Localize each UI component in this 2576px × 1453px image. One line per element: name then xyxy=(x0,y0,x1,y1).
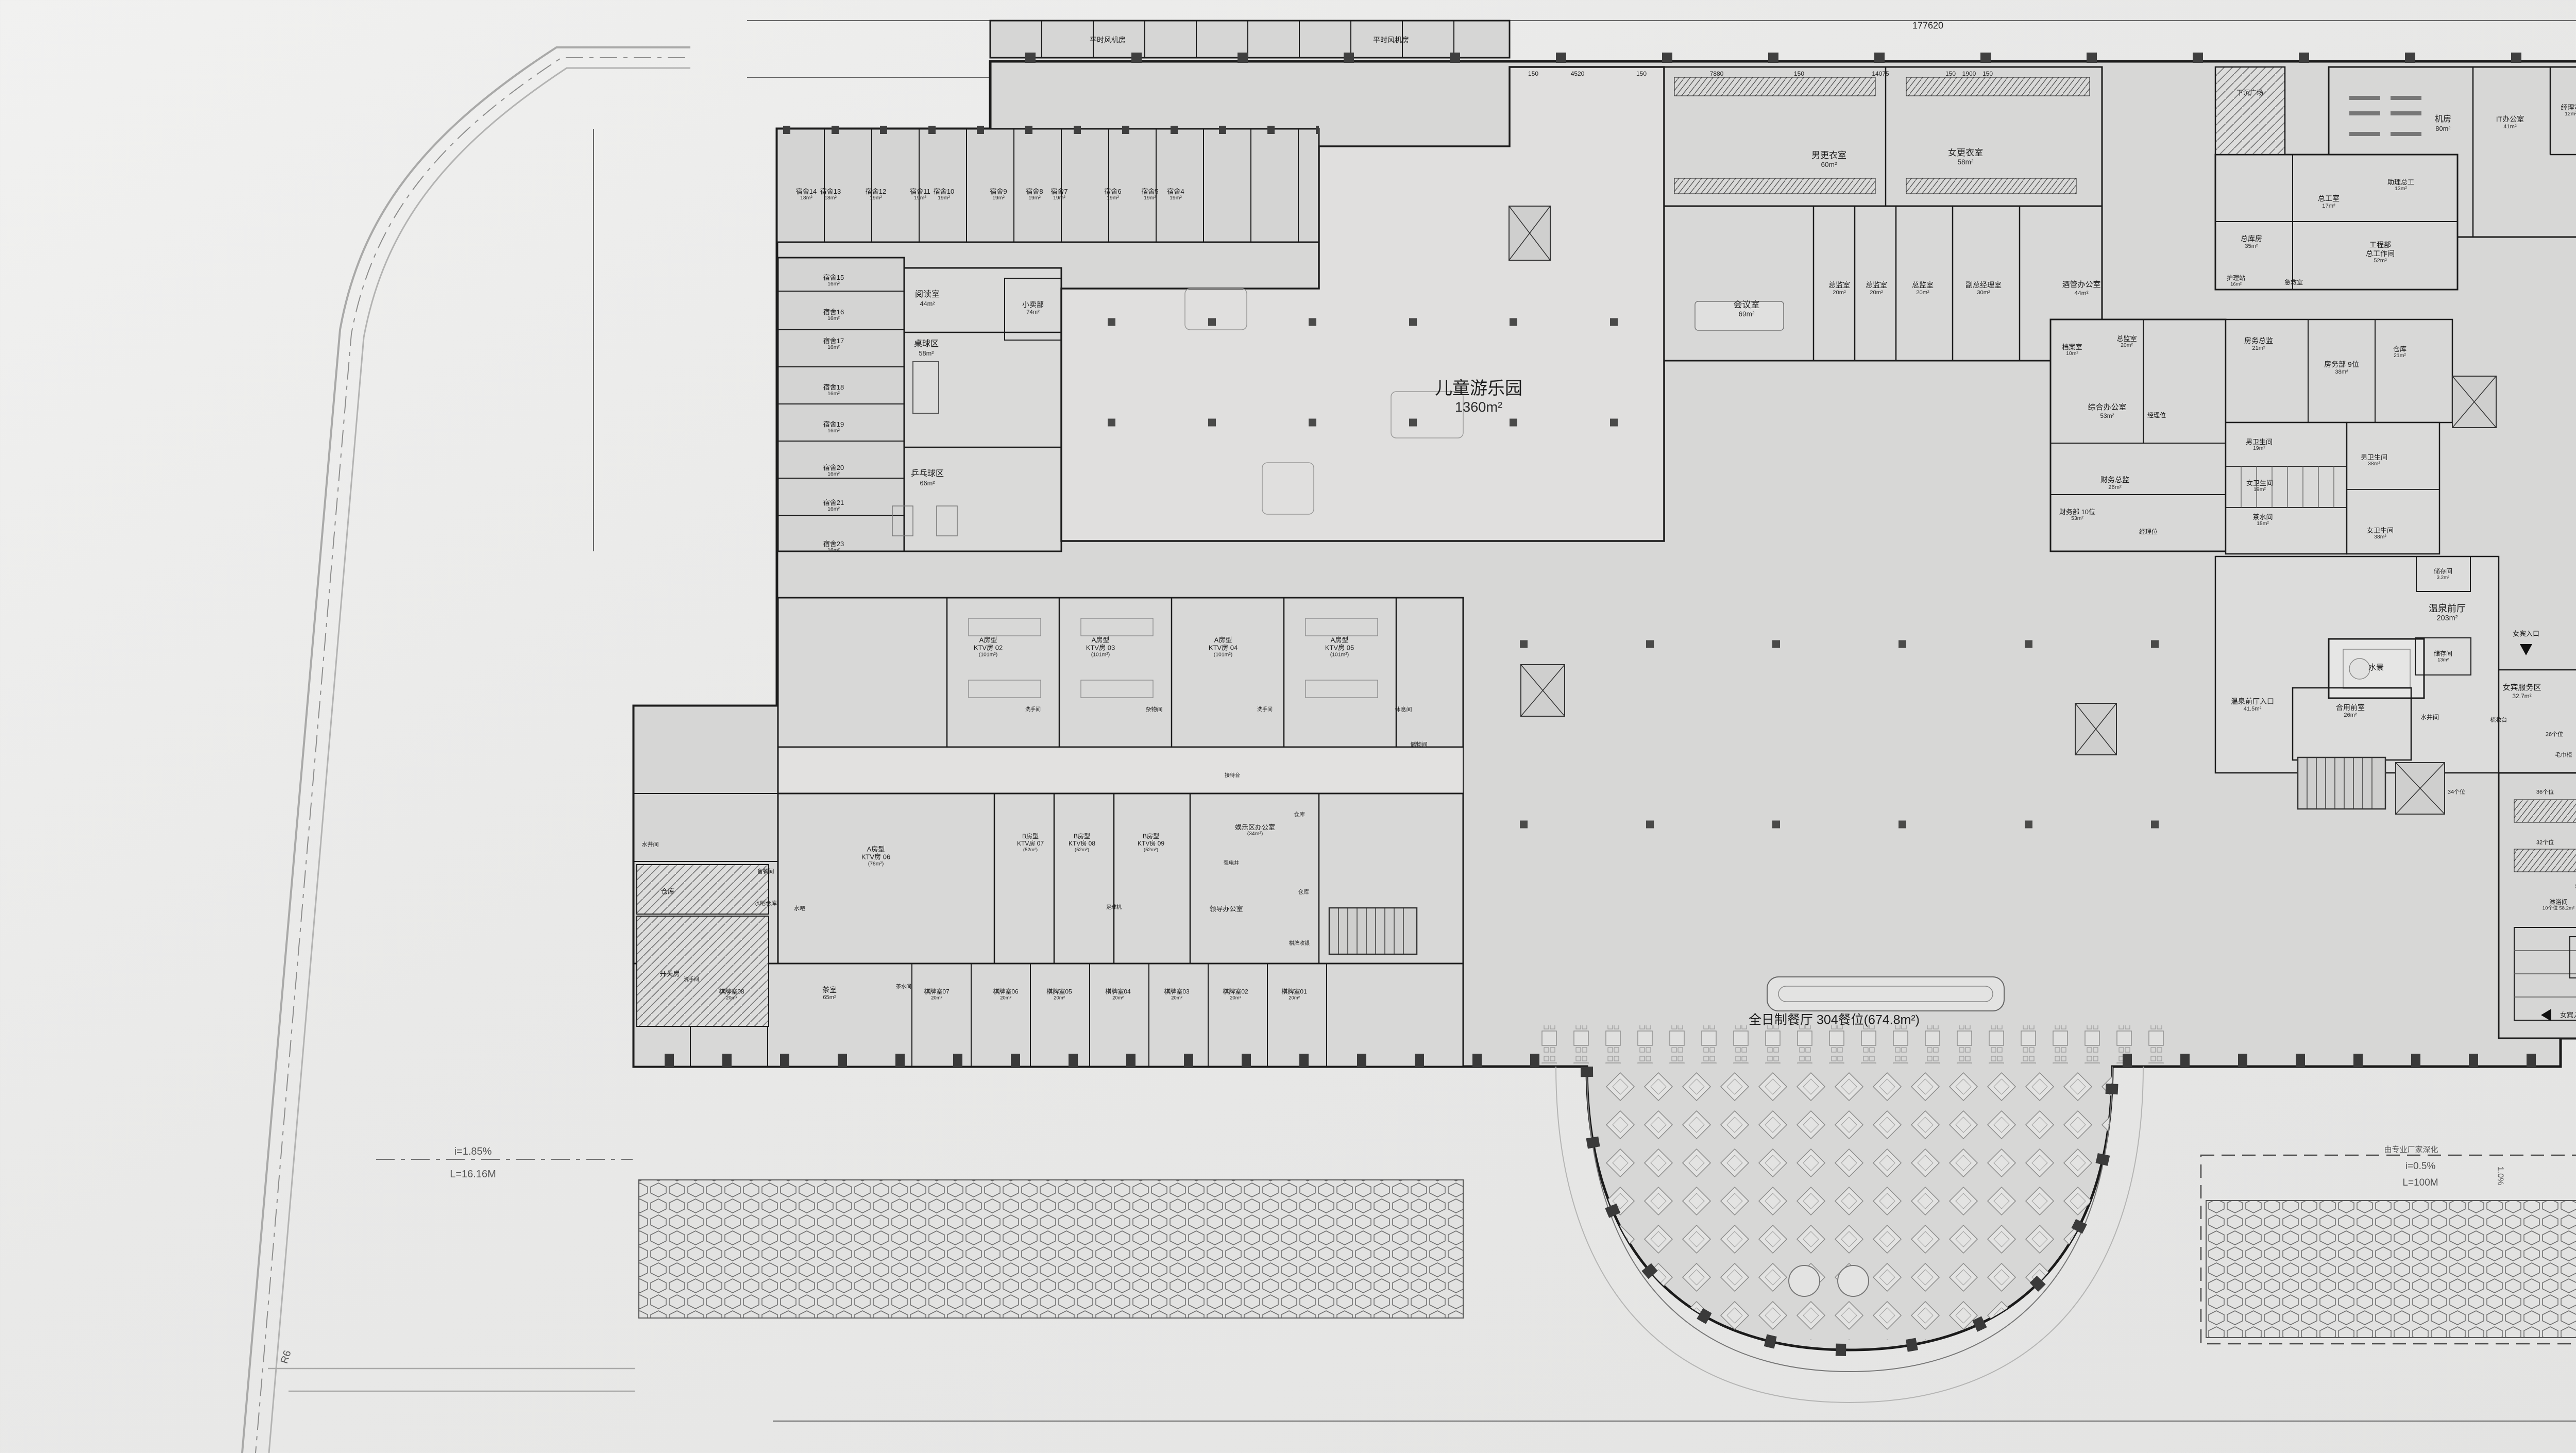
room-label: 宿舍1916m² xyxy=(823,420,844,435)
room-label: 合用前室26m² xyxy=(2336,703,2365,719)
dimension-label: 150 xyxy=(1945,70,1956,77)
room-label: 棋牌室0320m² xyxy=(1164,988,1189,1001)
room-label: 棋牌室0220m² xyxy=(1223,988,1248,1001)
room-label: 急救室 xyxy=(2284,279,2303,286)
room-label: 棋牌室0120m² xyxy=(1281,988,1307,1001)
dimension-label: 1900 xyxy=(1962,70,1976,77)
room-label: 娱乐区办公室(34m²) xyxy=(1235,823,1275,838)
room-label: 32个位 xyxy=(2536,840,2554,847)
room-label: 宿舍1418m² xyxy=(796,188,817,202)
room-label: 阅读室44m² xyxy=(915,290,940,308)
room-label: 宿舍2316m² xyxy=(823,540,844,554)
room-label: 财务总监26m² xyxy=(2100,476,2129,491)
room-label: 小卖部74m² xyxy=(1022,300,1044,316)
room-label: 储物间 xyxy=(1411,742,1428,749)
room-label: 茶水间 xyxy=(896,984,911,990)
room-label: B房型 KTV房 09(52m²) xyxy=(1138,833,1164,853)
room-label: 水井间 xyxy=(2420,714,2439,721)
room-label: 水吧仓库 xyxy=(754,901,777,907)
room-label: B房型 KTV房 07(52m²) xyxy=(1017,833,1044,853)
room-label: 仓库 xyxy=(1298,889,1309,896)
dimension-label: 150 xyxy=(1528,70,1538,77)
room-label: 宿舍1516m² xyxy=(823,274,844,288)
room-label: 宿舍719m² xyxy=(1050,188,1067,202)
room-label: 全日制餐厅 304餐位(674.8m²) xyxy=(1749,1012,1920,1028)
room-label: 平时风机房 xyxy=(1090,36,1126,45)
room-label: 接待台 xyxy=(1225,773,1240,779)
room-label: 水景 xyxy=(2368,663,2384,672)
room-label: 总监室20m² xyxy=(2116,335,2137,349)
room-label: 棋牌室0720m² xyxy=(924,988,949,1001)
dimension-label: 4520 xyxy=(1571,70,1585,77)
site-label: L=16.16M xyxy=(450,1169,496,1181)
room-label: 桌球区58m² xyxy=(914,340,939,357)
room-label: 洗手间 xyxy=(1025,707,1041,713)
room-label: 宿舍2016m² xyxy=(823,464,844,478)
room-label: 宿舍1616m² xyxy=(823,308,844,323)
room-label: 休息间 xyxy=(1395,707,1412,714)
room-label: 领导办公室 xyxy=(1209,905,1243,913)
room-label: 开关房 xyxy=(659,970,680,977)
room-label: 女卫生间38m² xyxy=(2367,527,2394,541)
room-label: 乒乓球区66m² xyxy=(911,469,944,487)
room-label: 宿舍519m² xyxy=(1141,188,1158,202)
room-label: 酒管办公室44m² xyxy=(2062,280,2100,297)
room-label: 仓库 xyxy=(1294,812,1305,819)
room-label: 宿舍1816m² xyxy=(823,383,844,398)
room-label: 宿舍1219m² xyxy=(866,188,886,202)
room-label: B房型 KTV房 08(52m²) xyxy=(1069,833,1095,853)
room-label: 备餐间 xyxy=(757,869,774,875)
labels-layer: 宿舍1418m²宿舍1318m²宿舍1219m²宿舍1119m²宿舍1019m²… xyxy=(0,0,2576,1453)
room-label: 总监室20m² xyxy=(1828,281,1850,296)
room-label: 温泉前厅入口41.5m² xyxy=(2231,697,2274,713)
room-label: 宿舍919m² xyxy=(990,188,1007,202)
room-label: 宿舍619m² xyxy=(1104,188,1121,202)
room-label: 强电井 xyxy=(1224,860,1239,867)
room-label: 洗手间 xyxy=(1257,707,1273,713)
room-label: 男更衣室60m² xyxy=(1811,150,1846,169)
room-label: A房型 KTV房 02(101m²) xyxy=(974,636,1003,658)
room-label: 宿舍1119m² xyxy=(910,188,930,202)
room-label: 女宾入口 xyxy=(2513,630,2539,637)
room-label: 宿舍419m² xyxy=(1167,188,1184,202)
room-label: 工程部 总工作间52m² xyxy=(2366,241,2395,264)
room-label: 淋浴间10个位 58.2m² xyxy=(2543,898,2574,911)
room-label: 梳妆台 xyxy=(2490,717,2507,724)
room-label: 仓库 xyxy=(661,887,674,895)
room-label: IT办公室41m² xyxy=(2496,115,2524,130)
room-label: 男卫生间38m² xyxy=(2361,453,2387,468)
room-label: 茶水间18m² xyxy=(2252,513,2273,528)
room-label: 综合办公室53m² xyxy=(2088,403,2126,419)
room-label: 经理位 xyxy=(2147,412,2166,419)
room-label: 26个位 xyxy=(2546,732,2563,738)
room-label: 男卫生间19m² xyxy=(2246,438,2273,452)
room-label: 棋牌室0620m² xyxy=(993,988,1018,1001)
room-label: 足球机 xyxy=(1106,905,1122,911)
site-label: i=0.5% xyxy=(2405,1161,2436,1172)
room-label: 宿舍1318m² xyxy=(820,188,841,202)
room-label: 总监室20m² xyxy=(1912,281,1934,296)
room-label: 茶室65m² xyxy=(822,986,837,1001)
room-label: 儿童游乐园1360m² xyxy=(1435,378,1522,415)
room-label: 护理站16m² xyxy=(2227,274,2245,287)
room-label: 总工室17m² xyxy=(2318,194,2340,210)
room-label: 宿舍1716m² xyxy=(823,337,844,351)
room-label: 房务部 9位38m² xyxy=(2324,360,2359,376)
room-label: A房型 KTV房 04(101m²) xyxy=(1209,636,1238,658)
site-label: 由专业厂家深化 xyxy=(2384,1145,2438,1155)
room-label: 会议室69m² xyxy=(1734,300,1760,318)
room-label: 下沉广场 xyxy=(2236,89,2263,96)
room-label: 宿舍1019m² xyxy=(934,188,954,202)
room-label: 36个位 xyxy=(2536,789,2554,796)
room-label: 经理室12m² xyxy=(2561,104,2576,118)
room-label: A房型 KTV房 05(101m²) xyxy=(1325,636,1354,658)
room-label: 助理总工13m² xyxy=(2387,178,2414,193)
floorplan-canvas: 宿舍1418m²宿舍1318m²宿舍1219m²宿舍1119m²宿舍1019m²… xyxy=(0,0,2576,1453)
site-label: R6 xyxy=(279,1349,294,1365)
room-label: 水吧 xyxy=(794,906,805,913)
room-label: 档案室10m² xyxy=(2062,343,2082,358)
room-label: 平时风机房 xyxy=(1373,36,1409,45)
dimension-label: 7880 xyxy=(1710,70,1724,77)
room-label: 女宾入口 xyxy=(2560,1011,2576,1019)
room-label: 水井间 xyxy=(642,842,659,849)
room-label: 女更衣室58m² xyxy=(1948,148,1983,166)
site-label: L=100M xyxy=(2402,1177,2438,1189)
room-label: 洗手间 xyxy=(684,977,699,983)
room-label: 储存间13m² xyxy=(2434,650,2452,663)
room-label: 棋牌室0820m² xyxy=(719,988,744,1001)
room-label: 宿舍819m² xyxy=(1026,188,1043,202)
room-label: 女宾服务区32.7m² xyxy=(2502,683,2541,700)
room-label: 财务部 10位53m² xyxy=(2059,508,2095,522)
room-label: 棋牌室0520m² xyxy=(1046,988,1072,1001)
dimension-label: 150 xyxy=(1636,70,1647,77)
room-label: 杂物间 xyxy=(1146,707,1163,714)
dimension-label: 150 xyxy=(1982,70,1993,77)
dimension-label: 14075 xyxy=(1872,70,1889,77)
dimension-label: 150 xyxy=(1794,70,1804,77)
room-label: 总库房35m² xyxy=(2241,234,2262,250)
room-label: 宿舍2116m² xyxy=(823,499,844,513)
room-label: 储存间3.2m² xyxy=(2434,567,2452,580)
room-label: 34个位 xyxy=(2448,789,2465,796)
room-label: 毛巾柜 xyxy=(2555,752,2572,759)
site-label: 1.0% xyxy=(2495,1167,2505,1185)
room-label: 机房80m² xyxy=(2435,115,2451,132)
site-label: i=1.85% xyxy=(454,1146,492,1158)
room-label: 总监室20m² xyxy=(1866,281,1887,296)
room-label: 副总经理室30m² xyxy=(1965,281,2002,296)
room-label: 房务总监21m² xyxy=(2244,336,2273,352)
room-label: 女卫生间19m² xyxy=(2246,479,2273,494)
dimension-total-label: 177620 xyxy=(1912,20,1943,31)
room-label: A房型 KTV房 06(78m²) xyxy=(861,846,890,868)
room-label: 棋牌收银 xyxy=(1289,941,1310,947)
room-label: 温泉前厅203m² xyxy=(2429,603,2466,623)
room-label: 棋牌室0420m² xyxy=(1105,988,1130,1001)
room-label: A房型 KTV房 03(101m²) xyxy=(1086,636,1115,658)
room-label: 仓库21m² xyxy=(2393,345,2406,360)
room-label: 经理位 xyxy=(2139,528,2158,535)
